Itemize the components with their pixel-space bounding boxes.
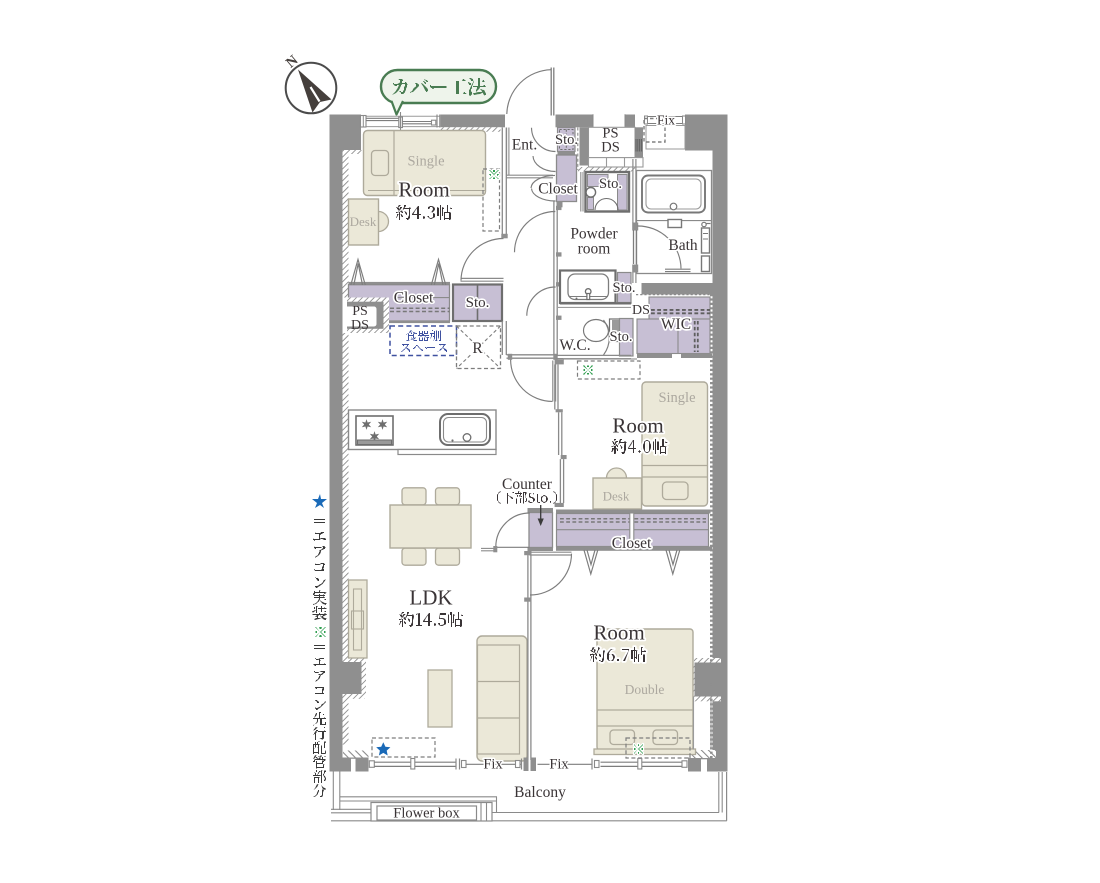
svg-text:Single: Single — [407, 154, 444, 170]
svg-text:Fix: Fix — [483, 757, 503, 773]
svg-text:R: R — [472, 340, 483, 357]
svg-text:Sto.: Sto. — [466, 295, 490, 311]
svg-text:Room: Room — [593, 621, 644, 645]
svg-text:Counter: Counter — [502, 476, 553, 493]
svg-text:Room: Room — [612, 414, 663, 438]
svg-text:Closet: Closet — [538, 181, 578, 198]
svg-text:W.C.: W.C. — [559, 337, 590, 354]
svg-text:DS: DS — [632, 303, 650, 318]
svg-text:Single: Single — [658, 390, 695, 406]
svg-text:Balcony: Balcony — [514, 784, 566, 801]
svg-text:Closet: Closet — [394, 290, 434, 307]
svg-text:WIC: WIC — [661, 316, 691, 333]
svg-text:DS: DS — [351, 318, 369, 333]
svg-text:DS: DS — [601, 140, 620, 156]
svg-text:Flower box: Flower box — [393, 806, 460, 822]
svg-text:room: room — [578, 241, 611, 258]
svg-text:LDK: LDK — [409, 586, 452, 610]
svg-text:Closet: Closet — [612, 535, 652, 552]
svg-text:Sto.: Sto. — [599, 176, 622, 192]
svg-text:PS: PS — [352, 304, 368, 319]
svg-text:Desk: Desk — [350, 214, 377, 229]
svg-text:Fix: Fix — [657, 113, 675, 128]
svg-text:Double: Double — [625, 682, 665, 697]
svg-text:Fix: Fix — [549, 757, 569, 773]
svg-text:Sto.: Sto. — [610, 329, 633, 345]
svg-text:Sto.: Sto. — [555, 132, 578, 148]
svg-text:Bath: Bath — [668, 237, 698, 254]
svg-text:Desk: Desk — [603, 489, 630, 504]
svg-text:Room: Room — [398, 178, 449, 202]
svg-text:Sto.: Sto. — [613, 280, 636, 296]
svg-text:Ent.: Ent. — [512, 137, 537, 154]
